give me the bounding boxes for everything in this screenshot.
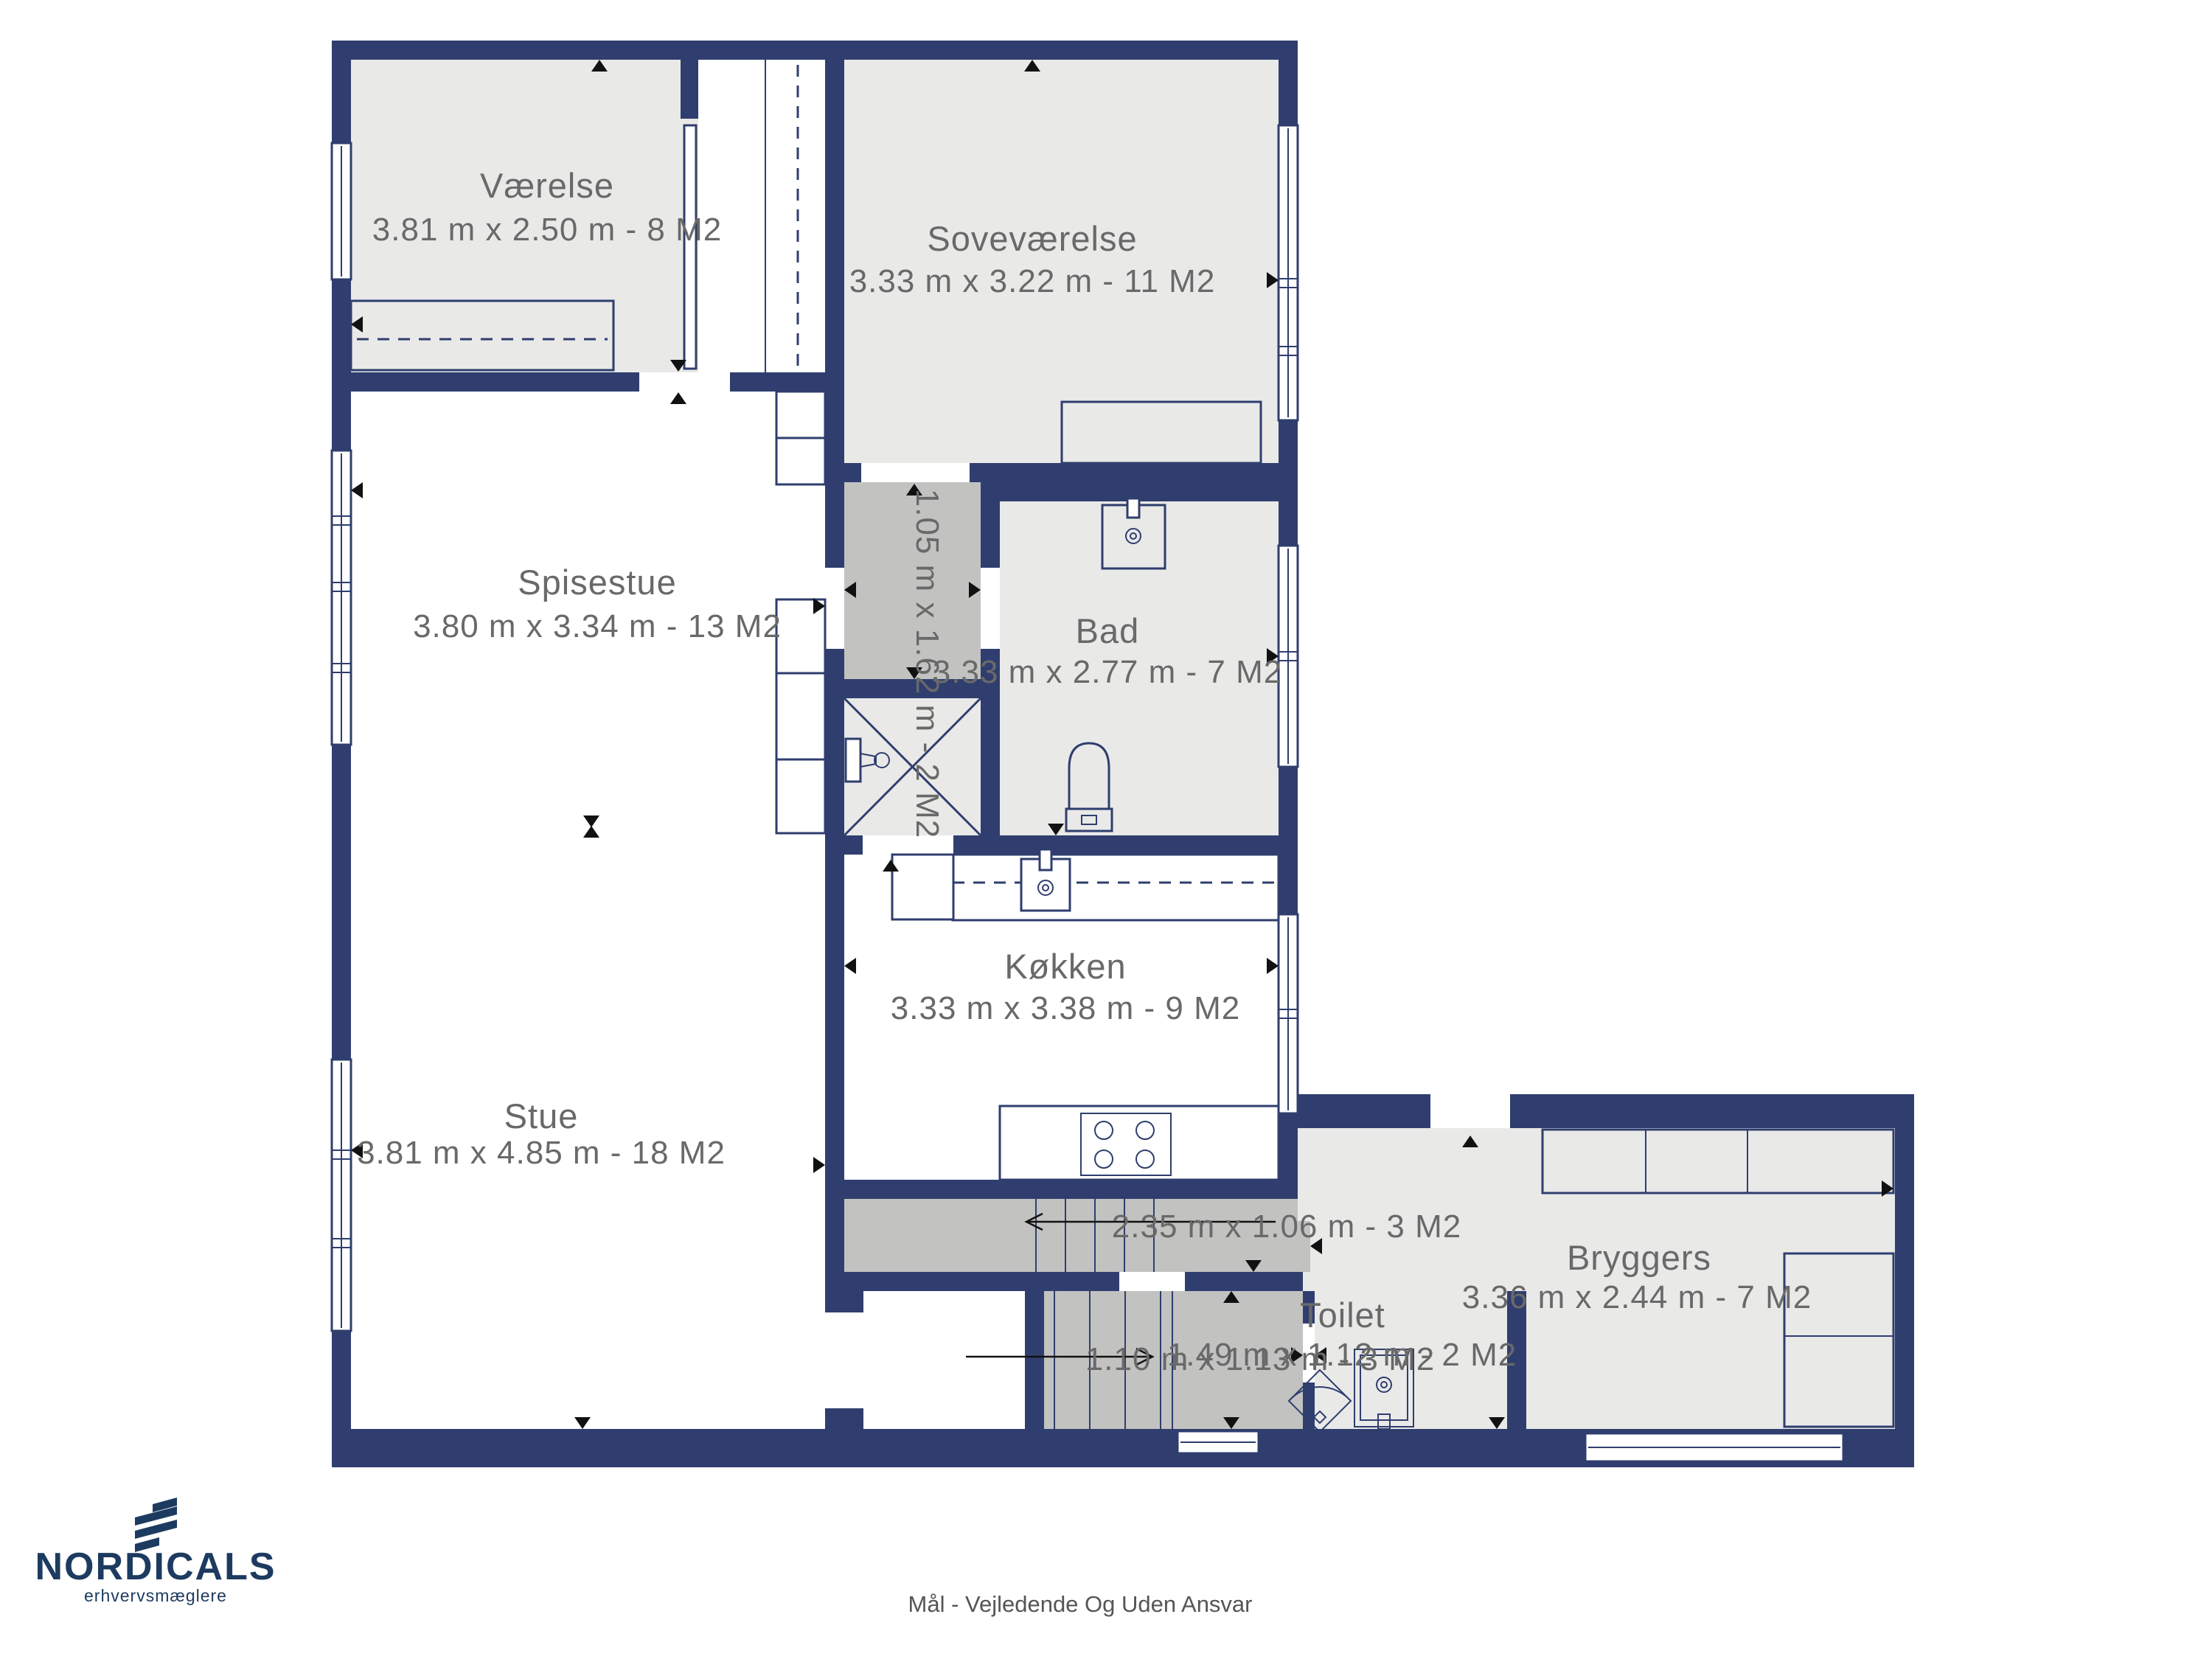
room-dims-toilet: 1.49 m x 1.12 m - 2 M2 — [1167, 1337, 1517, 1373]
room-name-spisestue: Spisestue — [518, 563, 676, 602]
brand-tagline: erhvervsmæglere — [84, 1586, 227, 1605]
room-name-sovevaerelse: Soveværelse — [927, 219, 1137, 258]
room-dims-stue: 3.81 m x 4.85 m - 18 M2 — [357, 1135, 726, 1171]
footer: NORDICALS erhvervsmæglere Mål - Vejleden… — [35, 1498, 1252, 1617]
floor-depot — [863, 1291, 1025, 1429]
bed-icon — [351, 301, 613, 370]
room-dims-bryggers: 3.36 m x 2.44 m - 7 M2 — [1462, 1279, 1812, 1315]
room-name-bad: Bad — [1076, 611, 1140, 650]
room-dims-spisestue: 3.80 m x 3.34 m - 13 M2 — [413, 608, 782, 644]
room-name-vaerelse: Værelse — [480, 166, 614, 205]
room-name-stue: Stue — [504, 1096, 579, 1135]
room-name-bryggers: Bryggers — [1567, 1238, 1711, 1277]
floor-spisestue-stue — [351, 392, 825, 1429]
room-name-toilet: Toilet — [1300, 1295, 1385, 1335]
entrance-door-icon — [1178, 1431, 1259, 1453]
window-icon — [1279, 125, 1298, 420]
room-dims-bad: 3.33 m x 2.77 m - 7 M2 — [933, 654, 1282, 690]
room-dims-sovevaerelse: 3.33 m x 3.22 m - 11 M2 — [849, 263, 1216, 299]
disclaimer-text: Mål - Vejledende Og Uden Ansvar — [908, 1591, 1253, 1617]
room-name-koekken: Køkken — [1004, 947, 1126, 986]
window-icon — [332, 451, 351, 745]
room-dims-trappe-op: 2.35 m x 1.06 m - 3 M2 — [1112, 1208, 1461, 1245]
window-icon — [1279, 914, 1298, 1113]
brand-wordmark: NORDICALS — [35, 1545, 276, 1588]
window-icon — [332, 143, 351, 279]
nordicals-logo-icon — [135, 1498, 177, 1552]
cabinets-icon — [776, 392, 825, 833]
floorplan-canvas: Værelse 3.81 m x 2.50 m - 8 M2 Soveværel… — [0, 0, 2212, 1659]
stove-icon — [1000, 1106, 1279, 1180]
room-dims-koekken: 3.33 m x 3.38 m - 9 M2 — [891, 990, 1240, 1026]
room-dims-vaerelse: 3.81 m x 2.50 m - 8 M2 — [372, 212, 722, 248]
window-icon — [332, 1060, 351, 1331]
window-icon — [1585, 1433, 1843, 1461]
kitchen-counter-icon — [892, 849, 1279, 920]
room-dims-gang: 1.05 m x 1.62 m - 2 M2 — [909, 489, 945, 838]
